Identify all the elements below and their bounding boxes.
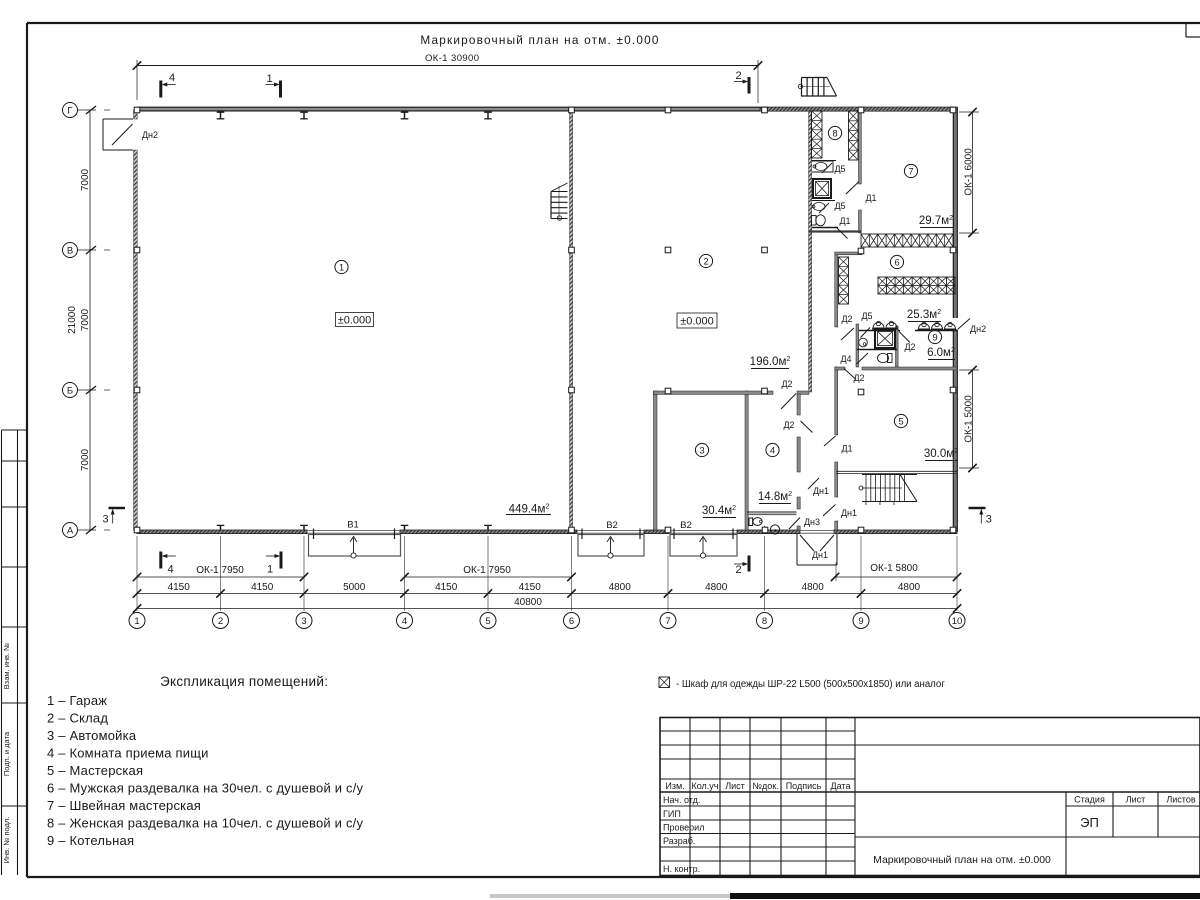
svg-text:Проверил: Проверил: [663, 823, 704, 833]
svg-text:8 – Женская раздевалка на 10че: 8 – Женская раздевалка на 10чел. с душев…: [47, 816, 363, 831]
svg-text:7: 7: [665, 616, 670, 627]
svg-text:1: 1: [339, 262, 344, 272]
svg-text:6 – Мужская раздевалка на 30че: 6 – Мужская раздевалка на 30чел. с душев…: [47, 781, 364, 796]
svg-text:Дн1: Дн1: [813, 486, 829, 496]
svg-text:Д1: Д1: [839, 216, 850, 226]
svg-text:Дата: Дата: [831, 781, 851, 791]
svg-text:7: 7: [908, 166, 913, 176]
svg-text:5000: 5000: [343, 582, 366, 593]
svg-text:9: 9: [858, 616, 863, 627]
svg-text:8: 8: [832, 128, 837, 138]
svg-text:Г: Г: [67, 105, 72, 116]
svg-text:Дн1: Дн1: [812, 550, 828, 560]
svg-text:ЭП: ЭП: [1080, 815, 1099, 830]
svg-text:4150: 4150: [251, 582, 274, 593]
svg-text:40800: 40800: [514, 597, 542, 608]
svg-text:3: 3: [102, 514, 108, 526]
svg-text:4: 4: [402, 616, 407, 627]
svg-text:6: 6: [894, 257, 899, 267]
svg-text:7000: 7000: [80, 308, 91, 331]
svg-text:Листов: Листов: [1166, 795, 1195, 805]
svg-text:Дн2: Дн2: [142, 130, 158, 140]
svg-text:Д2: Д2: [781, 379, 792, 389]
svg-text:196.0м2: 196.0м2: [750, 355, 791, 368]
svg-text:6: 6: [569, 616, 574, 627]
svg-text:449.4м2: 449.4м2: [509, 503, 550, 516]
svg-text:21000: 21000: [67, 306, 78, 334]
svg-text:Д5: Д5: [834, 164, 845, 174]
svg-text:Экспликация помещений:: Экспликация помещений:: [160, 674, 328, 689]
svg-text:5: 5: [898, 416, 903, 426]
svg-text:Разраб.: Разраб.: [663, 836, 695, 846]
svg-text:Инв. № подл.: Инв. № подл.: [2, 817, 11, 864]
svg-text:Стадия: Стадия: [1074, 795, 1105, 805]
svg-text:Д1: Д1: [841, 444, 852, 454]
svg-text:9: 9: [932, 332, 937, 342]
svg-text:ОК-1 5000: ОК-1 5000: [964, 395, 975, 443]
svg-text:Взам. инв. №: Взам. инв. №: [2, 643, 11, 689]
svg-text:Кол.уч: Кол.уч: [692, 781, 719, 791]
svg-text:Изм.: Изм.: [665, 781, 684, 791]
svg-text:30.0м2: 30.0м2: [924, 447, 958, 460]
svg-text:5: 5: [485, 616, 490, 627]
svg-text:Маркировочный план на отм. ±: Маркировочный план на отм. ±0.000: [420, 33, 659, 47]
svg-text:Дн1: Дн1: [841, 508, 857, 518]
svg-text:Д2: Д2: [841, 314, 852, 324]
svg-text:7 – Швейная мастерская: 7 – Швейная мастерская: [47, 798, 201, 813]
svg-text:В1: В1: [347, 520, 359, 531]
svg-text:3 – Автомойка: 3 – Автомойка: [47, 728, 137, 743]
svg-text:7000: 7000: [80, 448, 91, 471]
svg-text:- Шкаф для одежды ШР-22 L500: - Шкаф для одежды ШР-22 L500 (500х500х18…: [676, 679, 945, 690]
svg-text:10: 10: [952, 616, 963, 627]
svg-text:2: 2: [735, 564, 741, 576]
svg-text:В: В: [67, 245, 73, 256]
svg-text:1: 1: [267, 564, 273, 576]
svg-text:4800: 4800: [802, 582, 825, 593]
svg-text:Подпись: Подпись: [786, 781, 822, 791]
svg-text:6.0м2: 6.0м2: [927, 346, 955, 359]
svg-text:1: 1: [266, 73, 272, 85]
svg-text:Д2: Д2: [904, 342, 915, 352]
svg-text:5 – Мастерская: 5 – Мастерская: [47, 763, 143, 778]
svg-text:ОК-1 30900: ОК-1 30900: [425, 53, 479, 64]
svg-text:Д2: Д2: [783, 420, 794, 430]
svg-text:4150: 4150: [168, 582, 191, 593]
svg-text:ГИП: ГИП: [663, 809, 681, 819]
svg-text:Д2: Д2: [853, 373, 864, 383]
svg-text:±0.000: ±0.000: [680, 316, 714, 328]
svg-text:4 – Комната приема пищи: 4 – Комната приема пищи: [47, 746, 209, 761]
svg-text:3: 3: [699, 445, 704, 455]
svg-text:±0.000: ±0.000: [338, 315, 372, 327]
svg-text:Маркировочный план на отм. ±0.: Маркировочный план на отм. ±0.000: [873, 854, 1051, 866]
svg-text:Д5: Д5: [834, 201, 845, 211]
svg-text:14.8м2: 14.8м2: [758, 490, 792, 503]
svg-text:Н. контр.: Н. контр.: [663, 864, 700, 874]
svg-text:9 – Котельная: 9 – Котельная: [47, 833, 134, 848]
svg-text:4800: 4800: [609, 582, 632, 593]
svg-text:4800: 4800: [705, 582, 728, 593]
svg-text:Дн2: Дн2: [970, 324, 986, 334]
svg-text:Лист: Лист: [725, 781, 745, 791]
svg-text:А: А: [67, 525, 74, 536]
svg-text:3: 3: [301, 616, 306, 627]
svg-text:ОК-1 7950: ОК-1 7950: [463, 565, 511, 576]
svg-text:2 – Склад: 2 – Склад: [47, 711, 108, 726]
svg-text:4150: 4150: [519, 582, 542, 593]
svg-text:ОК-1 7950: ОК-1 7950: [196, 565, 244, 576]
svg-text:4: 4: [169, 72, 175, 84]
svg-text:4: 4: [167, 564, 173, 576]
svg-text:Нач. отд.: Нач. отд.: [663, 795, 700, 805]
svg-text:30.4м2: 30.4м2: [702, 504, 736, 517]
svg-text:29.7м2: 29.7м2: [919, 214, 953, 227]
svg-text:25.3м2: 25.3м2: [907, 308, 941, 321]
svg-text:В2: В2: [606, 520, 618, 531]
svg-text:7000: 7000: [80, 168, 91, 191]
svg-text:Д1: Д1: [865, 193, 876, 203]
svg-text:Д4: Д4: [840, 354, 851, 364]
svg-text:3: 3: [986, 514, 992, 526]
svg-text:1: 1: [134, 616, 139, 627]
svg-text:4: 4: [770, 445, 775, 455]
svg-text:№док.: №док.: [752, 781, 778, 791]
svg-text:Д5: Д5: [861, 311, 872, 321]
svg-text:Б: Б: [67, 385, 73, 396]
svg-text:ОК-1 6000: ОК-1 6000: [964, 148, 975, 196]
svg-text:2: 2: [218, 616, 223, 627]
svg-text:Дн3: Дн3: [804, 517, 820, 527]
svg-text:8: 8: [762, 616, 767, 627]
svg-text:Подп. и дата: Подп. и дата: [2, 731, 11, 776]
svg-text:2: 2: [735, 70, 741, 82]
svg-text:2: 2: [703, 256, 708, 266]
svg-text:Лист: Лист: [1126, 795, 1146, 805]
svg-text:1 – Гараж: 1 – Гараж: [47, 693, 107, 708]
svg-text:4150: 4150: [435, 582, 458, 593]
svg-text:В2: В2: [680, 520, 692, 531]
svg-text:4800: 4800: [898, 582, 921, 593]
svg-text:ОК-1 5800: ОК-1 5800: [870, 563, 918, 574]
